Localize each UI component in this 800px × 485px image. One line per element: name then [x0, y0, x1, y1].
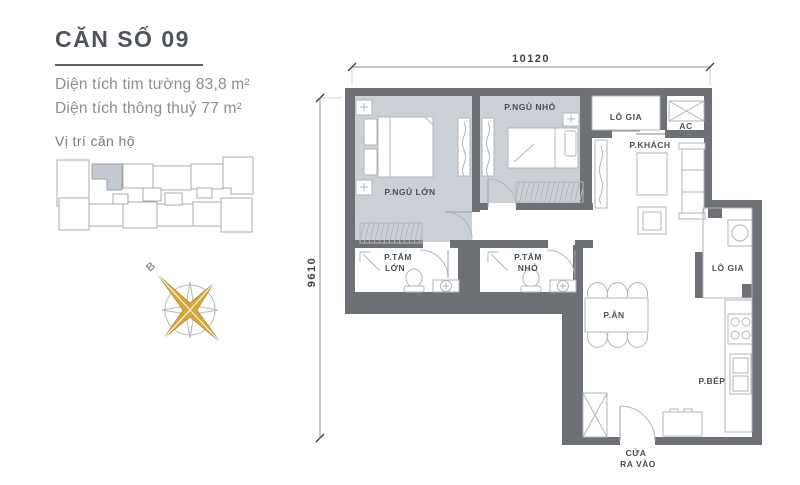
small-bedroom-label: P.NGỦ NHỎ	[504, 101, 556, 112]
dimension-top: 10120	[348, 53, 714, 86]
bath-large-label-1: P.TẮM	[384, 252, 412, 262]
title-underline	[55, 64, 203, 66]
building-locator-diagram	[55, 152, 255, 238]
page-title: CĂN SỐ 09	[55, 26, 190, 53]
bath-small-label-2: NHỎ	[518, 262, 538, 273]
loggia-side-label: LÔ GIA	[712, 262, 744, 273]
unit-location-label: Vị trí căn hộ	[55, 133, 135, 149]
ac-bay: AC	[669, 101, 704, 131]
master-bedroom-label: P.NGỦ LỚN	[384, 186, 435, 197]
compass-rose: B	[140, 258, 240, 358]
unit-09-highlight	[92, 164, 122, 190]
floorplan-page: { "header": { "title": "CĂN SỐ 09", "are…	[0, 0, 800, 485]
entrance-label-2: RA VÀO	[620, 459, 656, 469]
living-room-label: P.KHÁCH	[629, 140, 670, 150]
dining-label: P.ĂN	[603, 310, 624, 320]
compass-north-label: B	[144, 260, 158, 274]
ac-label: AC	[679, 121, 692, 131]
entrance: CỬA RA VÀO	[583, 393, 656, 469]
kitchen-label: P.BẾP	[699, 376, 726, 386]
bath-small: P.TẮM NHỎ	[488, 250, 576, 292]
entrance-label-1: CỬA	[626, 447, 647, 458]
area-net-text: Diện tích thông thuỷ 77 m²	[55, 100, 242, 118]
bath-large-label-2: LỚN	[385, 262, 405, 273]
area-gross-text: Diện tích tim tường 83,8 m²	[55, 76, 250, 94]
dimension-left-value: 9610	[306, 257, 318, 287]
kitchen: P.BẾP	[663, 300, 752, 436]
floor-plan: 10120 9610	[300, 40, 800, 485]
dimension-top-value: 10120	[512, 53, 550, 65]
loggia-top: LÔ GIA	[592, 96, 665, 134]
dimension-left: 9610	[306, 94, 342, 442]
dining-area: P.ĂN	[585, 283, 648, 348]
loggia-top-label: LÔ GIA	[610, 111, 642, 122]
bath-small-label-1: P.TẮM	[514, 252, 542, 262]
bath-large: P.TẮM LỚN	[360, 250, 459, 292]
living-room: P.KHÁCH	[595, 140, 705, 234]
